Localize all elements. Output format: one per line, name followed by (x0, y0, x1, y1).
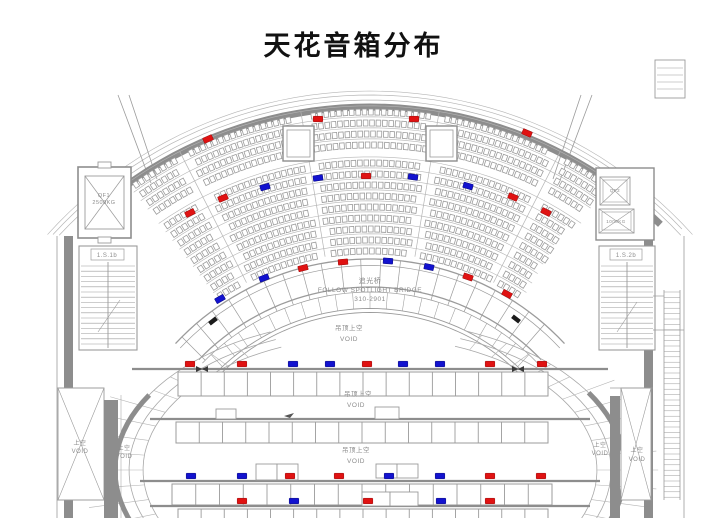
plan-label: 1000KG (606, 219, 626, 224)
plan-label: VOID (116, 454, 133, 460)
speaker-marker-red (362, 361, 372, 367)
plan-label: VOID (347, 458, 365, 465)
catwalk-bridge-2 (150, 407, 590, 443)
seating-rows (127, 106, 608, 299)
ceiling-speakers (184, 116, 551, 504)
speaker-marker-blue (289, 498, 299, 504)
speaker-marker-red (485, 473, 495, 479)
stage-light-mark (511, 314, 521, 323)
plan-label: VOID (72, 449, 89, 455)
plan-label: 1.S.2b (616, 253, 637, 259)
speaker-marker-red (363, 498, 373, 504)
speaker-marker-red (334, 473, 344, 479)
ceiling-speaker-plan: 追光桥FOLLOW SPOTLIGHT BRIDGE310-2901吊顶上空VO… (0, 0, 707, 518)
speaker-marker-blue (384, 473, 394, 479)
plan-label: VOID (592, 451, 609, 457)
plan-label: VOID (347, 402, 365, 409)
plan-label: VOID (629, 457, 646, 463)
speaker-marker-blue (325, 361, 335, 367)
speaker-marker-red (409, 116, 419, 122)
plan-label: 上空 (630, 446, 643, 454)
speaker-marker-red (185, 361, 195, 367)
speaker-marker-blue (435, 473, 445, 479)
speaker-marker-blue (398, 361, 408, 367)
plan-label: 追光桥 (359, 276, 382, 285)
speaker-marker-blue (435, 361, 445, 367)
plan-label: 1.S.1b (97, 253, 118, 259)
speaker-marker-blue (313, 175, 323, 182)
plan-label: 吊顶上空 (335, 323, 363, 332)
speaker-marker-red (237, 361, 247, 367)
speaker-marker-blue (383, 258, 393, 264)
floor-plan-drawing: 追光桥FOLLOW SPOTLIGHT BRIDGE310-2901吊顶上空VO… (0, 0, 707, 518)
speaker-marker-red (537, 361, 547, 367)
speaker-marker-blue (186, 473, 196, 479)
ceiling-inner-band (211, 292, 529, 372)
left-structure (57, 162, 137, 518)
speaker-marker-red (285, 473, 295, 479)
speaker-marker-red (237, 498, 247, 504)
speaker-marker-red (485, 361, 495, 367)
stage-light-mark (208, 316, 218, 325)
plan-label: 上空 (73, 439, 86, 447)
plan-label: 2500KG (92, 200, 115, 206)
speaker-marker-red (536, 473, 546, 479)
speaker-marker-red (361, 173, 371, 179)
speaker-marker-red (298, 264, 309, 272)
plan-label: 上空 (117, 444, 130, 452)
plan-label: VOID (340, 336, 358, 343)
plan-label: FOLLOW SPOTLIGHT BRIDGE (318, 287, 422, 294)
speaker-marker-blue (237, 473, 247, 479)
speaker-marker-blue (424, 263, 435, 270)
plan-label: 上空 (593, 441, 606, 449)
plan-label: 310-2901 (354, 296, 385, 303)
speaker-marker-red (338, 259, 348, 265)
plan-label: QF2 (610, 188, 620, 193)
speaker-marker-blue (288, 361, 298, 367)
speaker-marker-blue (463, 182, 474, 190)
speaker-marker-blue (408, 174, 418, 181)
plan-label: 吊顶上空 (344, 389, 372, 398)
speaker-marker-red (313, 116, 323, 122)
speaker-marker-red (485, 498, 495, 504)
speaker-marker-blue (436, 498, 446, 504)
plan-label: QF1 (98, 193, 110, 199)
plan-label: 吊顶上空 (342, 445, 370, 454)
